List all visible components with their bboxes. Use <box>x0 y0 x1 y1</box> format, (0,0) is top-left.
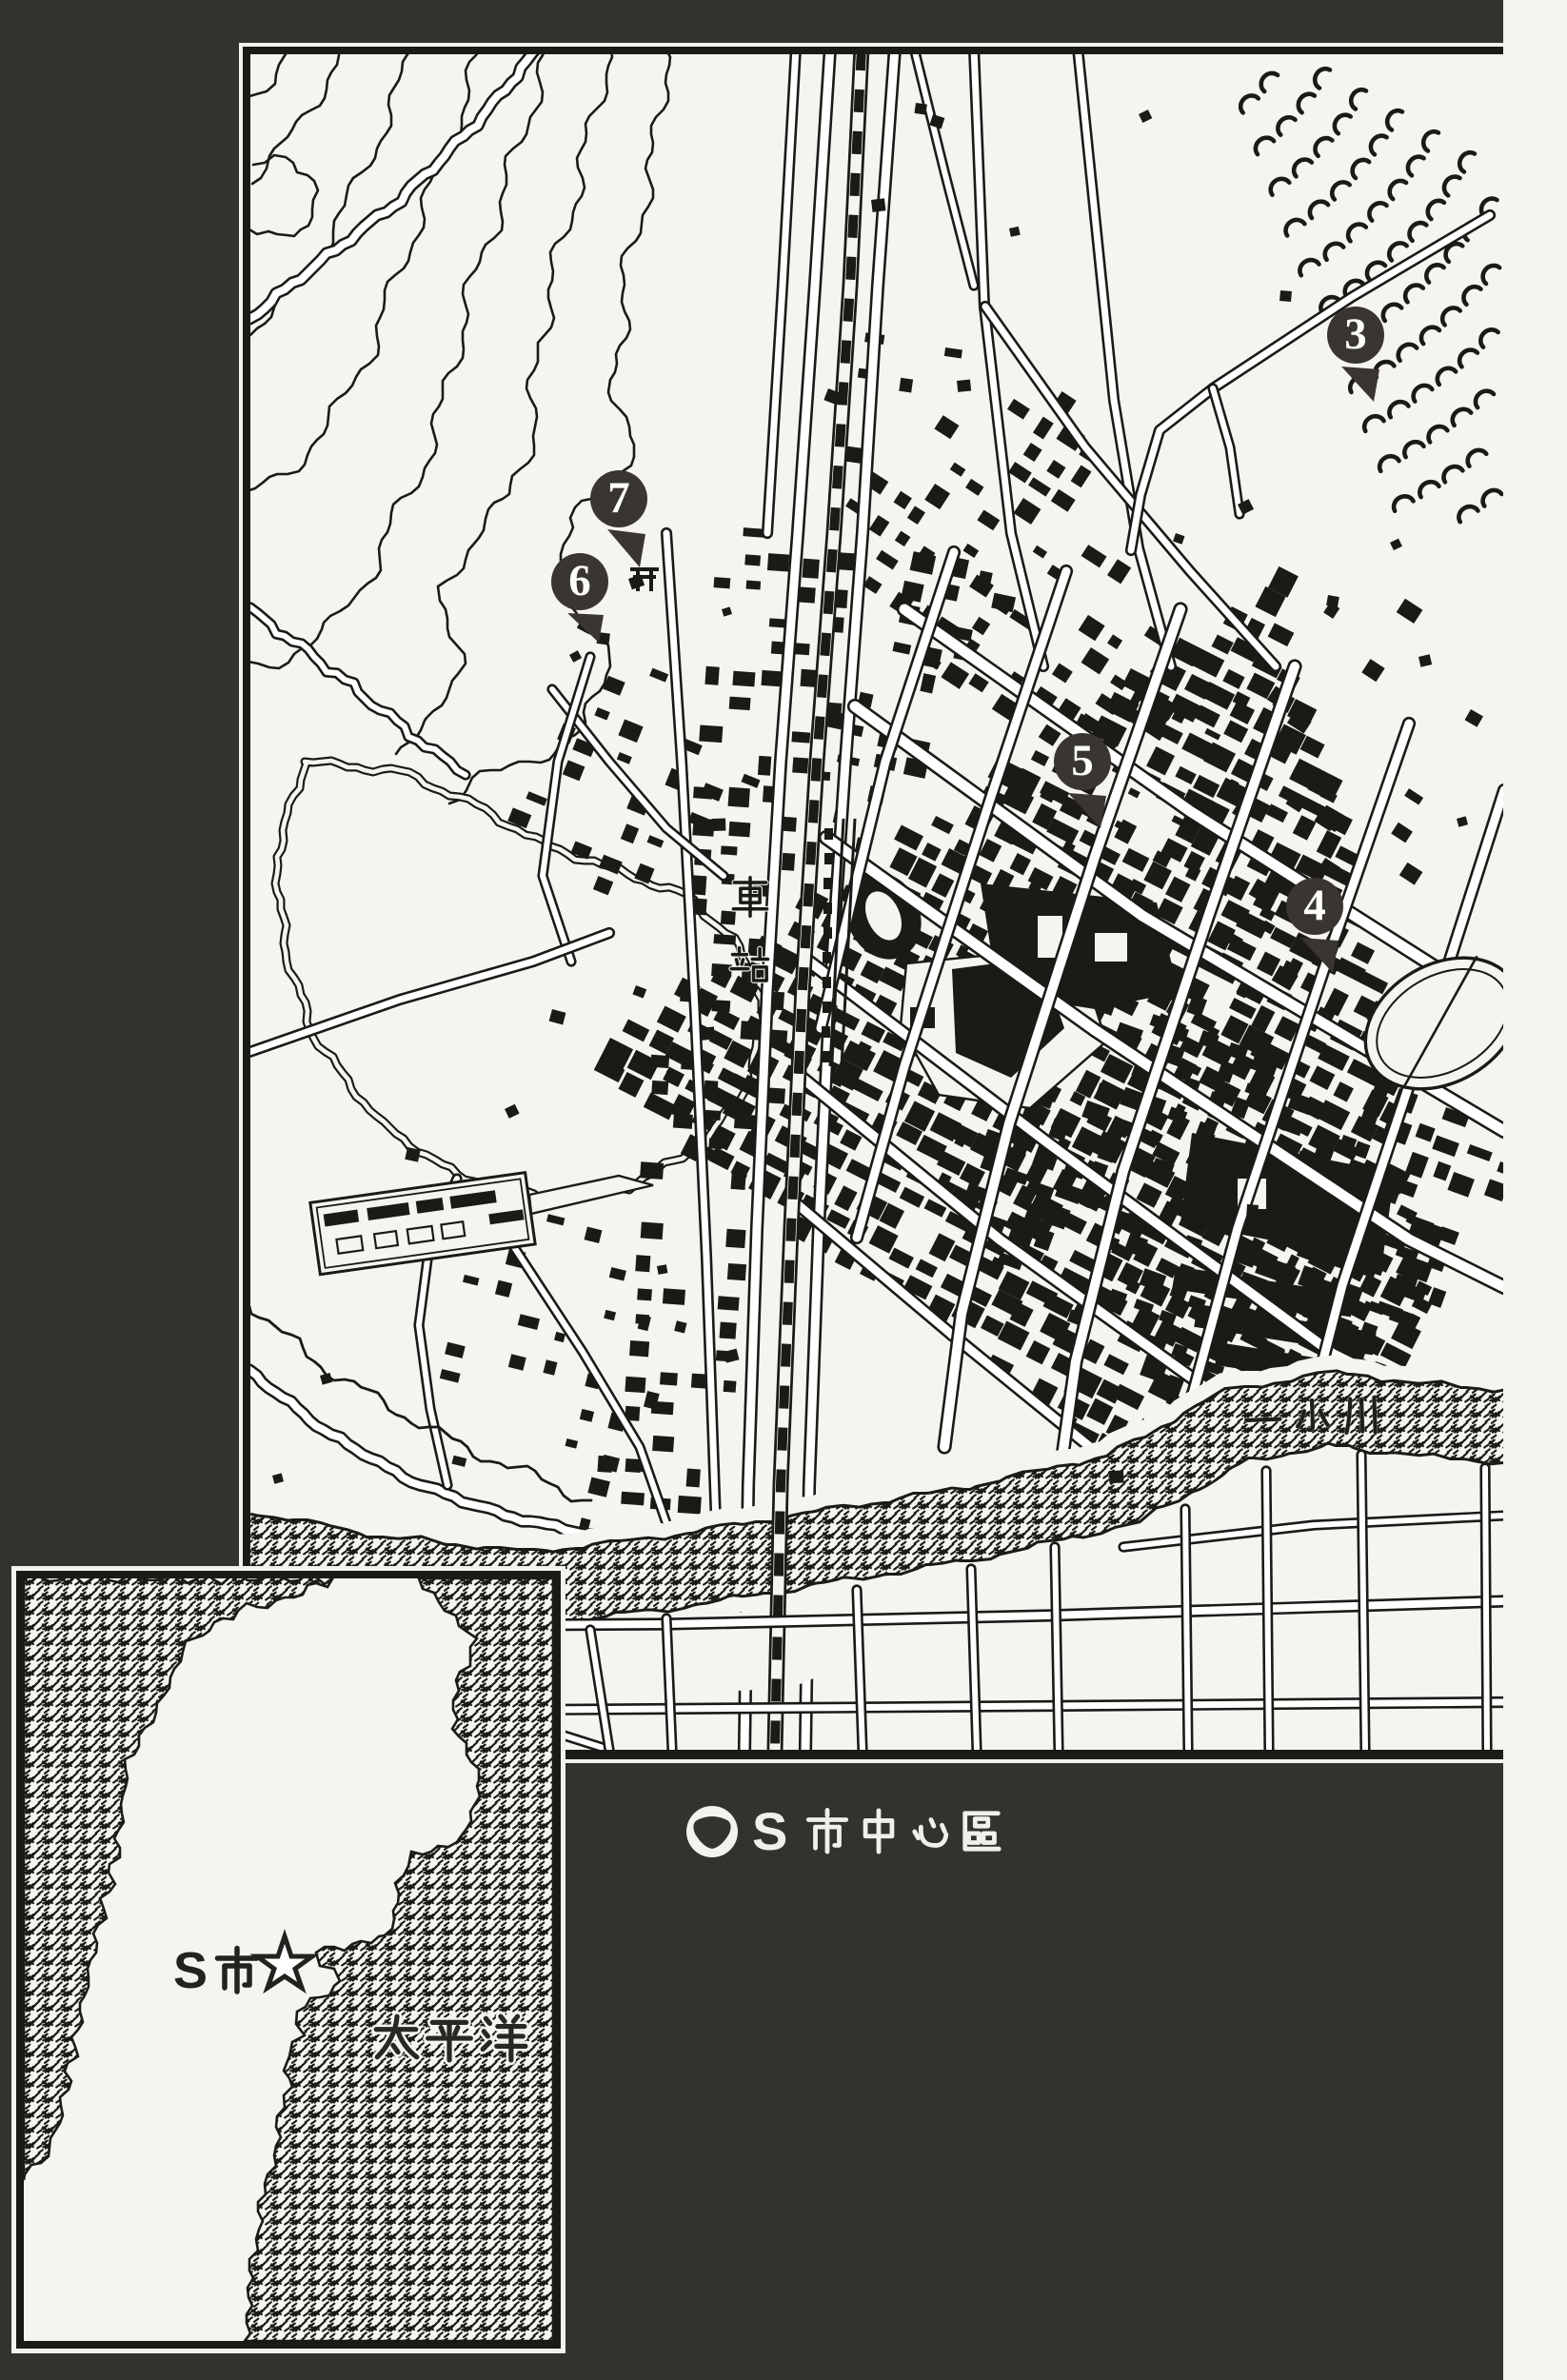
svg-text:7: 7 <box>607 473 630 523</box>
svg-text:6: 6 <box>568 556 591 605</box>
svg-text:3: 3 <box>1344 309 1367 359</box>
svg-text:5: 5 <box>1071 736 1094 785</box>
svg-text:S: S <box>752 1801 787 1861</box>
svg-text:S: S <box>173 1942 208 1999</box>
svg-text:4: 4 <box>1303 881 1326 930</box>
